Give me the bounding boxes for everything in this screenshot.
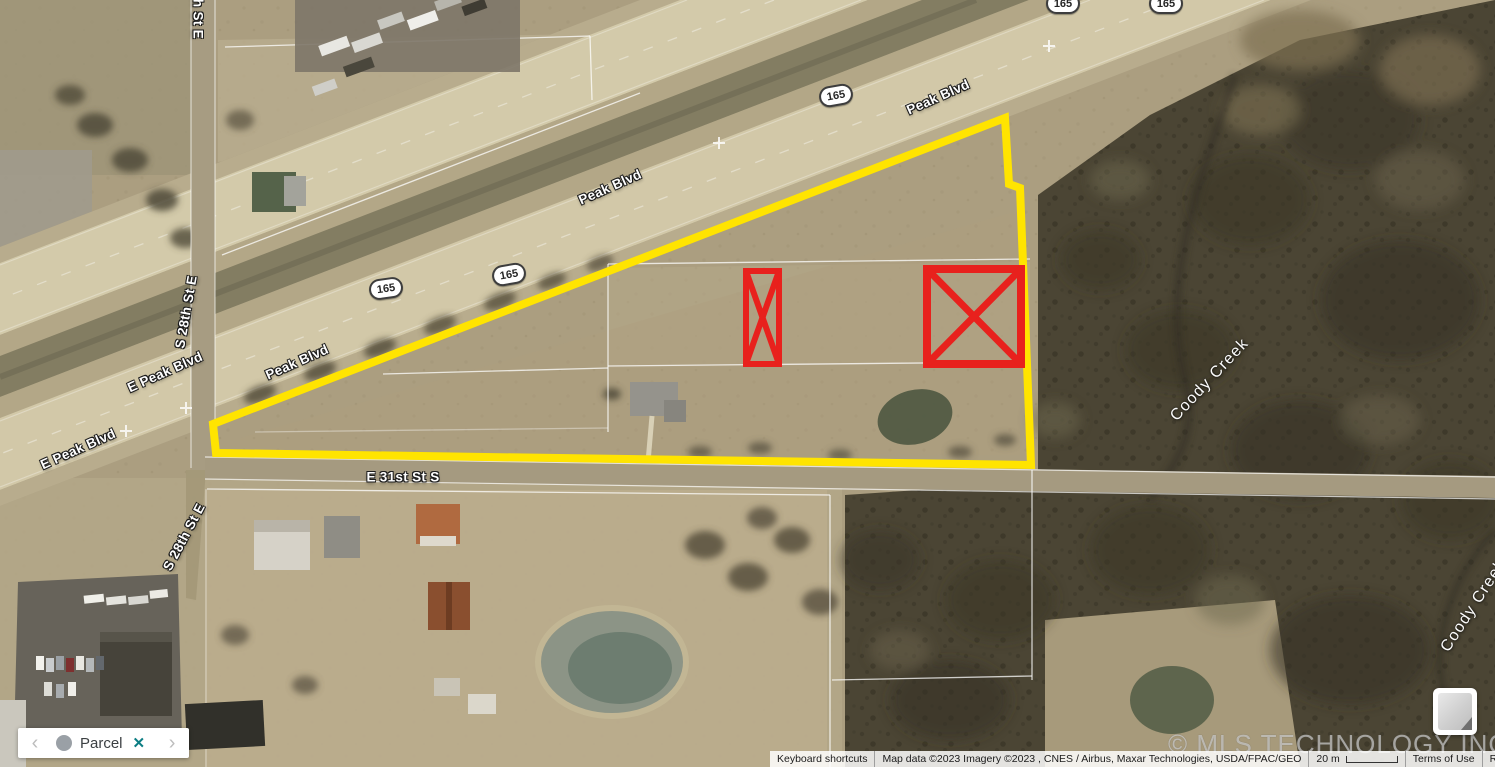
keyboard-shortcuts-button[interactable]: Keyboard shortcuts <box>770 751 874 767</box>
map-data-attribution: Map data ©2023 Imagery ©2023 , CNES / Ai… <box>874 751 1308 767</box>
report-map-error-link[interactable]: Report a map error <box>1482 751 1495 767</box>
map-control-button[interactable] <box>1433 688 1477 735</box>
next-parcel-button[interactable]: › <box>155 728 189 758</box>
scale-text: 20 m <box>1316 753 1339 765</box>
parcel-marker-icon <box>56 735 72 751</box>
scale-bar-icon <box>1346 756 1398 763</box>
map-viewport[interactable]: Peak BlvdPeak BlvdPeak BlvdE Peak BlvdE … <box>0 0 1495 767</box>
close-icon[interactable]: ✕ <box>133 734 146 752</box>
attribution-bar: Keyboard shortcuts Map data ©2023 Imager… <box>770 751 1495 767</box>
previous-parcel-button[interactable]: ‹ <box>18 728 52 758</box>
parcel-chip-bar: ‹ Parcel ✕ › <box>18 728 189 758</box>
parcel-chip-label: Parcel <box>80 735 123 752</box>
terms-of-use-link[interactable]: Terms of Use <box>1405 751 1482 767</box>
map-scale-control[interactable]: 20 m <box>1308 751 1404 767</box>
map-control-corner-icon <box>1461 717 1472 730</box>
satellite-imagery <box>0 0 1495 767</box>
